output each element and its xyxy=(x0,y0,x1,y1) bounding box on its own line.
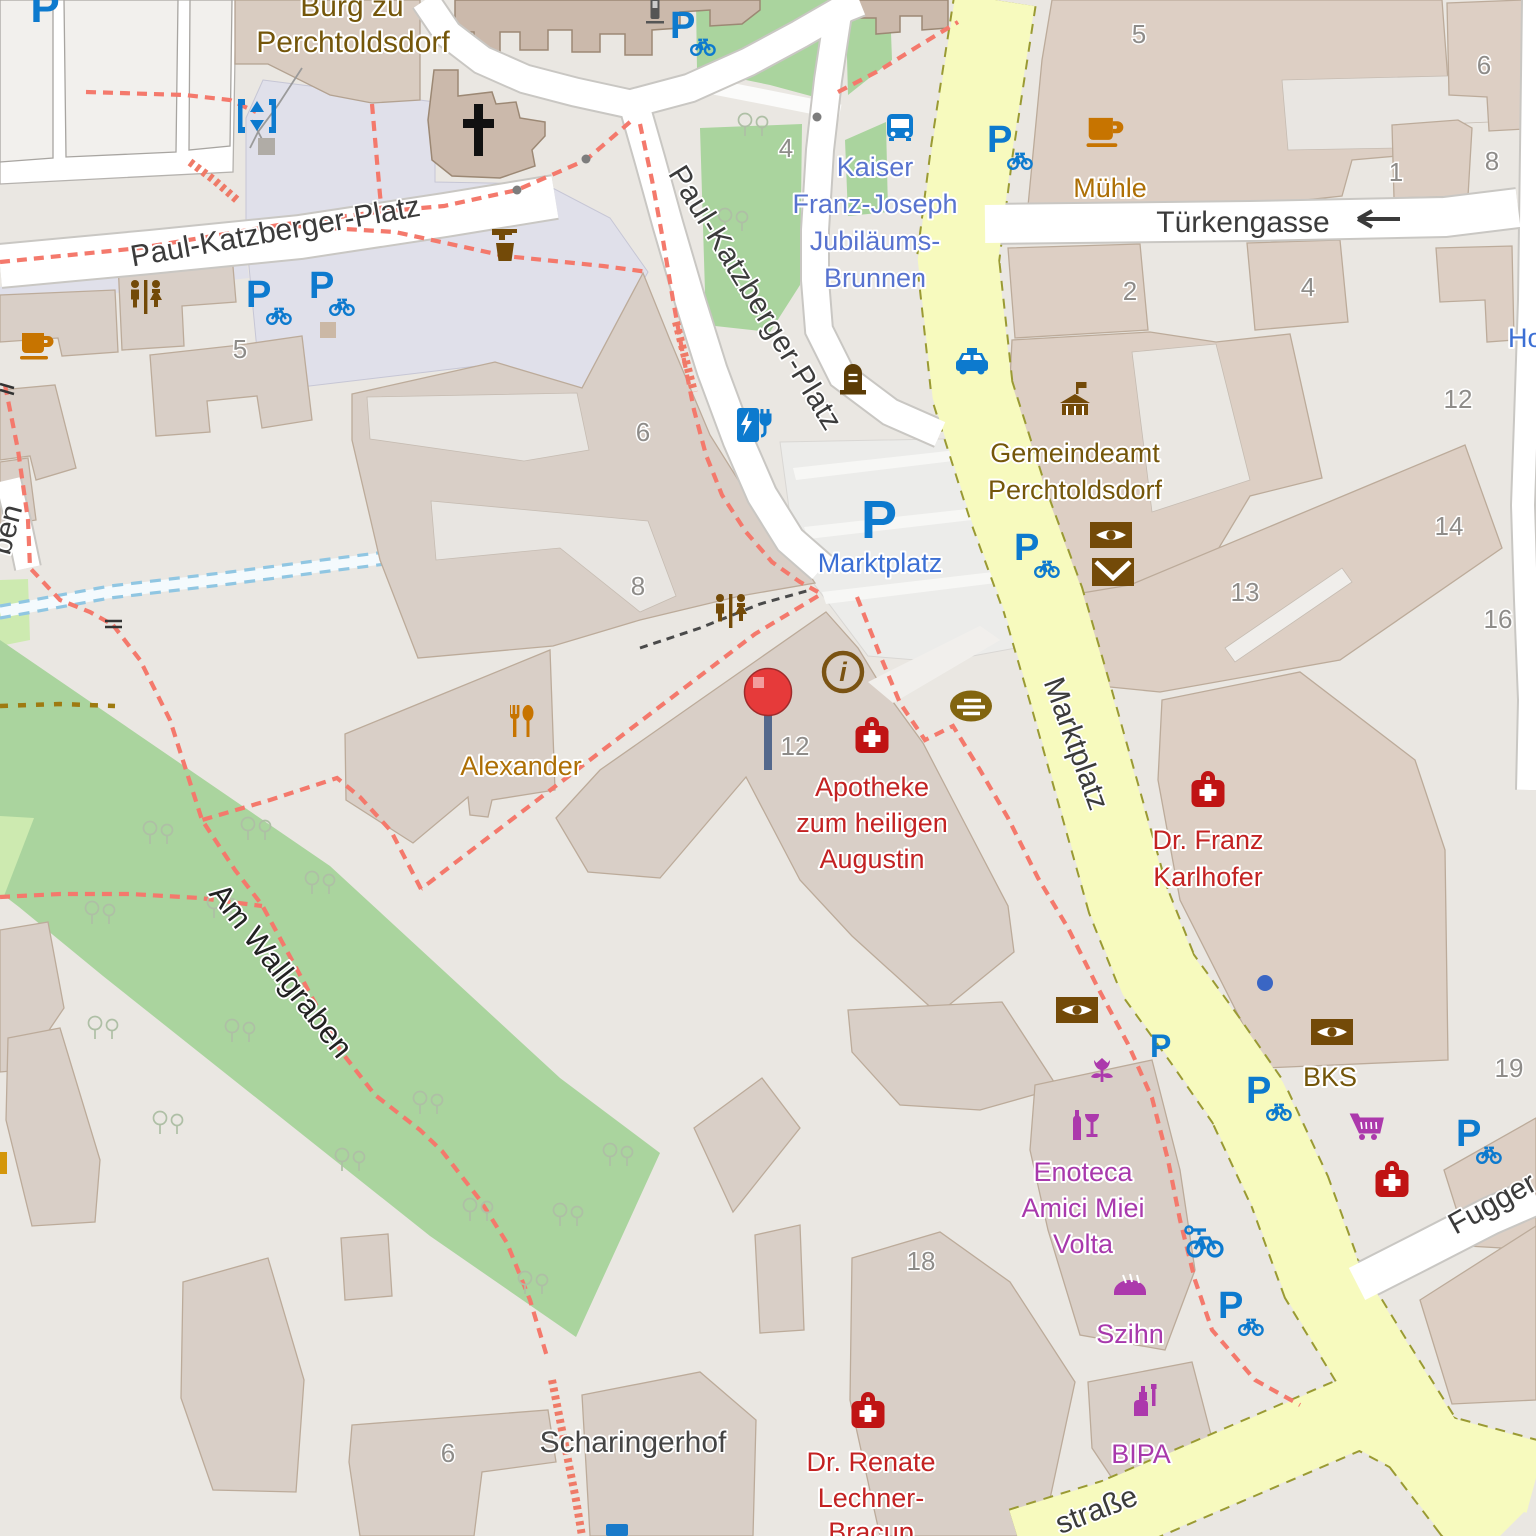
svg-text:Mühle: Mühle xyxy=(1073,173,1147,203)
svg-text:5: 5 xyxy=(233,334,247,364)
svg-text:Ho: Ho xyxy=(1508,323,1536,353)
svg-text:Scharingerhof: Scharingerhof xyxy=(540,1426,727,1459)
svg-text:BKS: BKS xyxy=(1303,1062,1357,1092)
svg-text:Dr. Franz: Dr. Franz xyxy=(1152,825,1263,855)
svg-text:P: P xyxy=(30,0,59,32)
svg-text:Volta: Volta xyxy=(1053,1229,1114,1259)
svg-text:Brunnen: Brunnen xyxy=(824,263,926,293)
svg-text:14: 14 xyxy=(1435,511,1464,541)
svg-text:4: 4 xyxy=(1301,272,1315,302)
svg-text:16: 16 xyxy=(1484,604,1513,634)
svg-text:Perchtoldsdorf: Perchtoldsdorf xyxy=(988,475,1163,505)
svg-text:Türkengasse: Türkengasse xyxy=(1156,206,1329,239)
svg-text:18: 18 xyxy=(907,1246,936,1276)
svg-text:8: 8 xyxy=(631,571,645,601)
svg-text:5: 5 xyxy=(1132,19,1146,49)
svg-text:1: 1 xyxy=(1389,157,1403,187)
svg-text:4: 4 xyxy=(779,133,793,163)
svg-text:Bracup: Bracup xyxy=(828,1517,914,1536)
svg-text:6: 6 xyxy=(636,417,650,447)
svg-text:Burg zu: Burg zu xyxy=(300,0,403,23)
svg-text:13: 13 xyxy=(1231,577,1260,607)
svg-text:BIPA: BIPA xyxy=(1111,1439,1171,1469)
svg-text:P: P xyxy=(861,490,897,550)
svg-text:zum heiligen: zum heiligen xyxy=(796,808,948,838)
svg-text:8: 8 xyxy=(1485,146,1499,176)
svg-text:Enoteca: Enoteca xyxy=(1033,1157,1133,1187)
svg-text:2: 2 xyxy=(1123,276,1137,306)
svg-text:Alexander: Alexander xyxy=(460,751,582,781)
svg-text:Szihn: Szihn xyxy=(1096,1319,1164,1349)
svg-text:Franz-Joseph: Franz-Joseph xyxy=(792,189,957,219)
svg-text:Perchtoldsdorf: Perchtoldsdorf xyxy=(256,26,450,59)
svg-text:Gemeindeamt: Gemeindeamt xyxy=(990,438,1160,468)
svg-text:Augustin: Augustin xyxy=(819,844,924,874)
svg-text:Apotheke: Apotheke xyxy=(815,772,929,802)
svg-text:Kaiser: Kaiser xyxy=(837,152,914,182)
svg-text:Dr. Renate: Dr. Renate xyxy=(806,1447,935,1477)
svg-text:6: 6 xyxy=(1477,50,1491,80)
svg-text:P: P xyxy=(1150,1028,1171,1064)
svg-text:Karlhofer: Karlhofer xyxy=(1153,862,1263,892)
svg-text:Marktplatz: Marktplatz xyxy=(818,548,943,578)
svg-text:Jubiläums-: Jubiläums- xyxy=(810,226,941,256)
svg-text:Lechner-: Lechner- xyxy=(818,1483,925,1513)
svg-text:12: 12 xyxy=(781,731,810,761)
svg-text:6: 6 xyxy=(441,1438,455,1468)
svg-text:19: 19 xyxy=(1495,1053,1524,1083)
svg-text:12: 12 xyxy=(1444,384,1473,414)
svg-text:Amici Miei: Amici Miei xyxy=(1021,1193,1144,1223)
